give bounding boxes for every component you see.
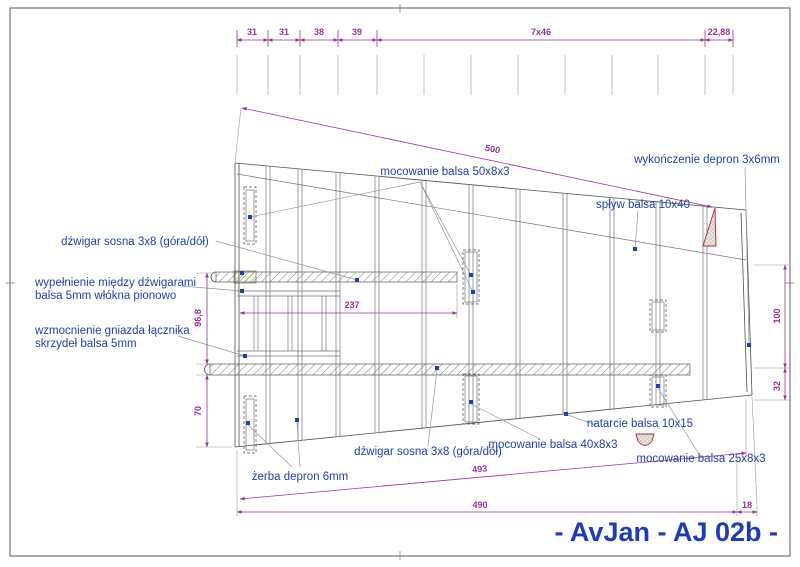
- dim-chain-3: 39: [352, 27, 362, 37]
- label-mocowanie-25: mocowanie balsa 25x8x3: [636, 453, 765, 465]
- dim-chain-5: 22,88: [708, 27, 731, 37]
- leading-edge-section: [636, 434, 654, 446]
- dim-tip-offset: 18: [742, 500, 752, 510]
- dim-tip-lower: 32: [772, 381, 782, 391]
- root-dimensions: 96,8 70: [193, 273, 232, 447]
- spar-band-upper: [211, 271, 457, 283]
- dim-leading: 493: [472, 463, 488, 474]
- spar-band-lower: [205, 364, 691, 375]
- center-section-frame: [237, 291, 340, 356]
- label-dzwigar-top: dźwigar sosna 3x8 (góra/dół): [61, 236, 209, 248]
- dim-chain-2: 38: [314, 27, 324, 37]
- label-splyw: spływ balsa 10x40: [596, 199, 690, 211]
- trailing-edge-section: [703, 208, 716, 246]
- drawing-title: - AvJan - AJ 02b -: [554, 517, 778, 547]
- label-mocowanie-40: mocowanie balsa 40x8x3: [488, 439, 617, 451]
- dim-tip-upper: 100: [772, 308, 782, 323]
- dim-root-lower: 70: [193, 406, 203, 416]
- dim-chain-0: 31: [247, 27, 257, 37]
- label-wzmocnienie-line1: wzmocnienie gniazda łącznika: [34, 325, 190, 337]
- top-dimension-chain: 31 31 38 39 7x46 22,88: [237, 27, 733, 47]
- dim-root-upper: 96,8: [193, 309, 203, 327]
- label-wykonczenie: wykończenie depron 3x6mm: [633, 154, 780, 166]
- joiner-pocket: [234, 271, 256, 283]
- label-mocowanie-50: mocowanie balsa 50x8x3: [380, 166, 509, 178]
- mounting-blocks: [244, 187, 666, 453]
- spar-dimension: 237: [240, 284, 457, 318]
- label-natarcie: natarcie balsa 10x15: [587, 418, 693, 430]
- wing-plan-drawing: 31 31 38 39 7x46 22,88 500 237 96,8 70 1…: [0, 0, 800, 567]
- label-zerba: żerba depron 6mm: [252, 471, 349, 483]
- label-wypelnienie-line1: wypełnienie między dźwigarami: [34, 277, 196, 289]
- tip-dimensions: 100 32: [754, 265, 789, 400]
- drawing-page: 31 31 38 39 7x46 22,88 500 237 96,8 70 1…: [0, 0, 800, 567]
- dim-bottom: 490: [472, 500, 487, 510]
- reference-dots: [240, 215, 751, 425]
- dim-span: 500: [484, 143, 501, 156]
- dim-spar: 237: [344, 300, 359, 310]
- station-stub-lines: [237, 55, 733, 95]
- label-wzmocnienie-line2: skrzydeł balsa 5mm: [35, 338, 137, 350]
- dim-chain-1: 31: [279, 27, 289, 37]
- dim-chain-4: 7x46: [531, 27, 551, 37]
- label-wypelnienie-line2: balsa 5mm włókna pionowo: [35, 290, 176, 302]
- label-dzwigar-bottom: dźwigar sosna 3x8 (góra/dół): [354, 446, 502, 458]
